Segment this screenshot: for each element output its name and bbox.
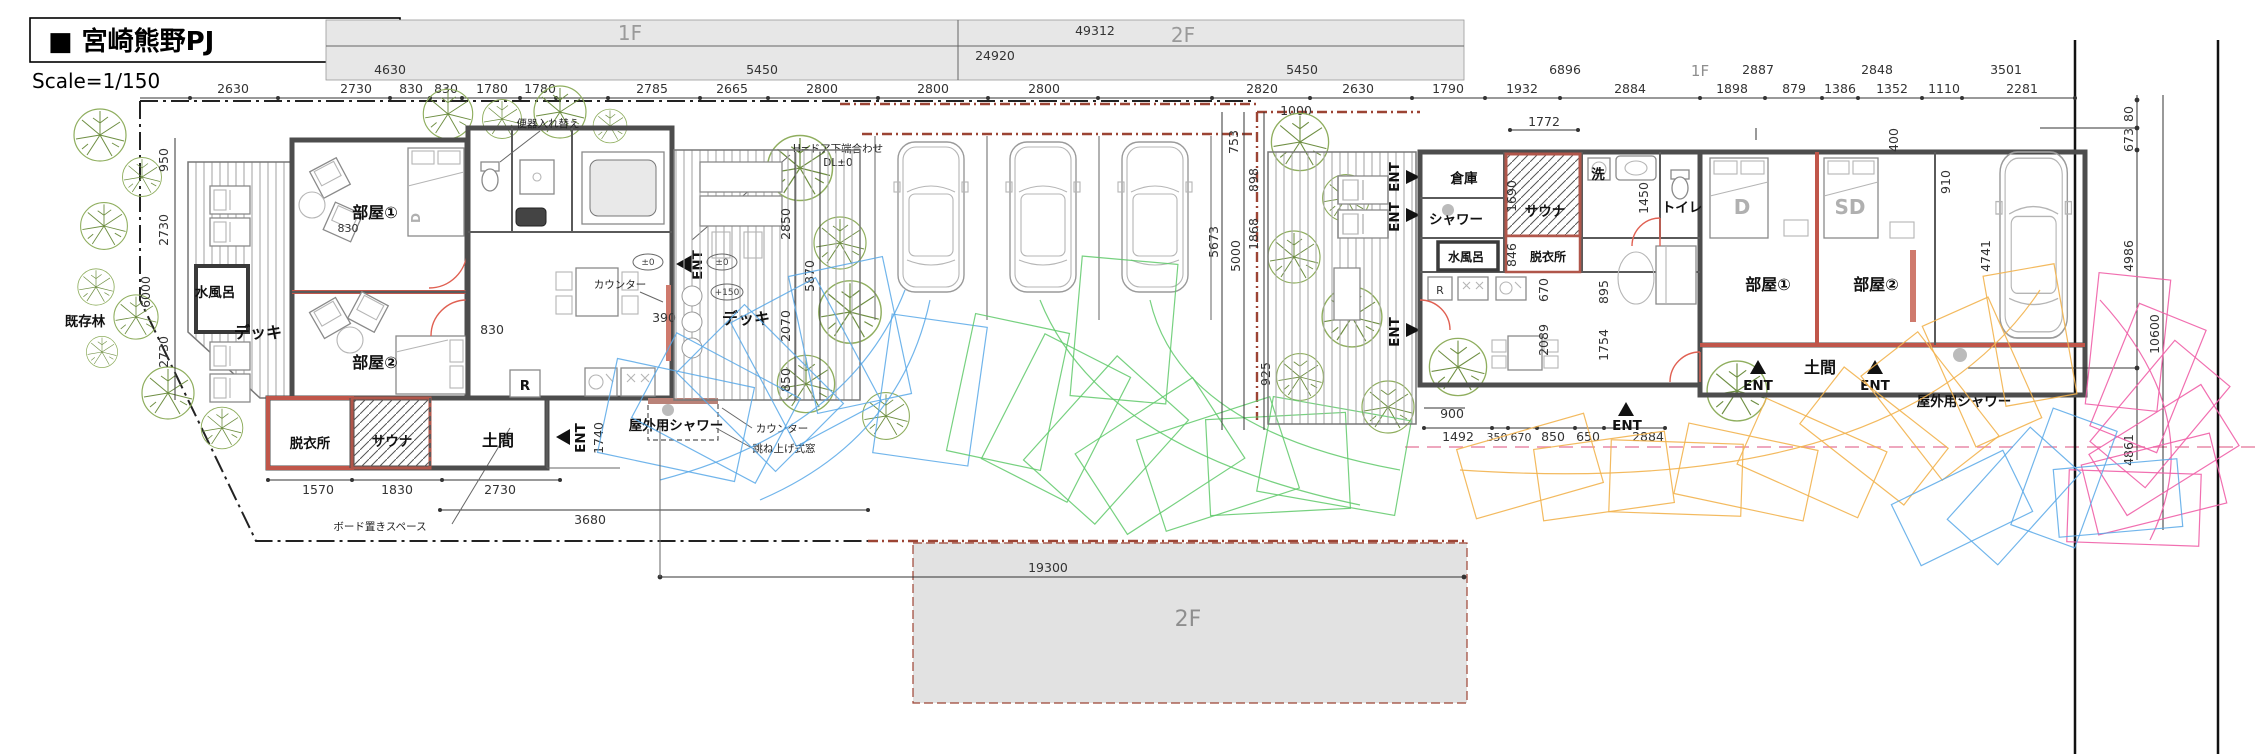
dim-bottom: 1492 [1442, 429, 1474, 444]
dim-v: 2730 [156, 336, 171, 368]
tree-icon [78, 269, 114, 305]
floor-label-2f-bottom: 2F [1175, 607, 1202, 632]
dim-v: 4986 [2121, 240, 2136, 272]
side-table [299, 192, 325, 218]
shower-right-label: シャワー [1429, 212, 1483, 228]
ent-label: ENT [1612, 418, 1643, 434]
room1-right-label: 部屋① [1745, 275, 1791, 294]
dim-830-inner: 830 [338, 222, 359, 235]
parking-area [875, 136, 1211, 320]
dim-cell: 1898 [1716, 81, 1748, 96]
deck-lounger [210, 342, 250, 370]
site2-deck: ENT ENT ENT [1268, 152, 1420, 424]
ent-label: ENT [1387, 161, 1403, 192]
stepping-stone [682, 286, 702, 306]
dim-v: 895 [1596, 280, 1611, 304]
toilet-fixture [1671, 170, 1689, 199]
dim-bottom: 2730 [484, 482, 516, 497]
side-table [337, 327, 363, 353]
dim-cell: 2884 [1614, 81, 1646, 96]
dining-table [576, 268, 618, 316]
sauna-left [352, 398, 430, 468]
dim-v: 5870 [802, 260, 817, 292]
middle-deck: ±0 +150 デッキ 2850 5870 2070 850 カウンター 跳ね上… [674, 150, 860, 455]
dim-v: 1754 [1596, 329, 1611, 361]
ent-label: ENT [1387, 316, 1403, 347]
counter-note: カウンター [594, 279, 647, 291]
dim-1772: 1772 [1528, 114, 1560, 129]
nightstand [1784, 220, 1808, 236]
dim-390: 390 [652, 310, 676, 325]
outdoor-shower-right-label: 屋外用シャワー [1917, 393, 2012, 410]
room1-left-label: 部屋① [352, 203, 398, 222]
deck-lounger [1338, 176, 1388, 204]
dim-v: 1868 [1246, 218, 1261, 250]
sofa [1656, 246, 1696, 304]
right-site: 80 673 4986 10600 4861 [1968, 95, 2163, 530]
dim-24920: 24920 [975, 48, 1015, 63]
ent-label: ENT [1387, 201, 1403, 232]
mid-site-dimensions: 753 898 1868 5673 5000 925 [1206, 112, 1273, 430]
dim-bottom: 3680 [574, 512, 606, 527]
fridge-label: R [520, 378, 531, 394]
dim-v: 846 [1504, 243, 1519, 267]
dim-cell: 2800 [806, 81, 838, 96]
level-mark: ±0 [641, 258, 655, 268]
dim-cell: 2800 [917, 81, 949, 96]
site-plan-drawing: ■ 宮崎熊野PJ Scale=1/150 1F 2F 1F 49312 2492… [0, 0, 2258, 754]
dim-bottom: 1830 [381, 482, 413, 497]
project-title: ■ 宮崎熊野PJ [48, 26, 214, 57]
dim-cell: 2665 [716, 81, 748, 96]
cold-bath-left-label: 水風呂 [195, 284, 236, 301]
ent-label: ENT [573, 422, 589, 453]
deck-lounger [210, 374, 250, 402]
dim-span: 5450 [746, 62, 778, 77]
dim-span: 6896 [1549, 62, 1581, 77]
right-building: R D SD 倉庫 シャワー 水風呂 サウナ 脱衣所 洗 トイレ [1420, 114, 2085, 444]
dim-cell: 2820 [1246, 81, 1278, 96]
dim-bottom: 1570 [302, 482, 334, 497]
fridge-label: R [1436, 284, 1444, 297]
dim-v: 80 [2121, 106, 2136, 122]
dim-v: 2850 [778, 208, 793, 240]
dim-v: 898 [1246, 168, 1261, 192]
rug [1618, 252, 1654, 304]
armchair [348, 292, 389, 333]
tree-icon [81, 203, 128, 250]
dim-cell: 2630 [1342, 81, 1374, 96]
dim-49312: 49312 [1075, 23, 1115, 38]
dim-span: 5450 [1286, 62, 1318, 77]
dim-cell: 1352 [1876, 81, 1908, 96]
bed-sd-label: SD [1834, 195, 1865, 219]
level-mark: ±0 [715, 258, 729, 268]
sauna-right-label: サウナ [1525, 204, 1566, 220]
wash-basin [1616, 156, 1656, 180]
stepping-stone [682, 312, 702, 332]
existing-forest-label: 既存林 [65, 313, 106, 330]
doma-right-label: 土間 [1804, 358, 1836, 377]
tree-icon [863, 393, 910, 440]
ent-arrow-icon [1618, 402, 1634, 416]
tree-icon [201, 407, 243, 449]
dim-v: 673 [2121, 128, 2136, 152]
bathtub-inner [590, 160, 656, 216]
sauna-left-label: サウナ [372, 434, 413, 450]
cold-bath-right-label: 水風呂 [1448, 249, 1484, 264]
sink [516, 208, 546, 226]
shower-head-icon [662, 404, 674, 416]
dim-v: 5000 [1228, 240, 1243, 272]
dim-1000: 1000 [1280, 103, 1312, 118]
car-top-view [1118, 142, 1192, 292]
floor-label-2f-top: 2F [1171, 23, 1195, 47]
tree-icon [423, 89, 472, 138]
level-mark: +150 [715, 288, 740, 298]
stove [1458, 277, 1488, 300]
flip-window-note: 跳ね上げ式窓 [753, 442, 816, 455]
dim-v: 5673 [1206, 226, 1221, 258]
dim-cell: 2730 [340, 81, 372, 96]
dim-cell: 1110 [1928, 81, 1960, 96]
deck-bench [1334, 268, 1360, 320]
dim-v: 2089 [1536, 324, 1551, 356]
dim-span: 4630 [374, 62, 406, 77]
outdoor-table [700, 162, 782, 192]
dim-v: 2070 [778, 310, 793, 342]
armchair [310, 298, 351, 339]
bed-size-label: D [409, 213, 423, 223]
car-top-view [894, 142, 968, 292]
deck-lounger [210, 186, 250, 214]
room2-left-label: 部屋② [352, 353, 398, 372]
dim-cell: 1790 [1432, 81, 1464, 96]
dim-830-gap: 830 [480, 322, 504, 337]
dim-v: 400 [1886, 128, 1901, 152]
toilet-note: 便器入れ替え [517, 117, 580, 130]
board-space-note: ボード置きスペース [333, 521, 426, 533]
ent-arrow-icon [1867, 360, 1883, 374]
dim-cell: 2281 [2006, 81, 2038, 96]
outdoor-table [700, 196, 782, 226]
dim-cell: 1932 [1506, 81, 1538, 96]
dim-bottom: 900 [1440, 406, 1464, 421]
dim-cell: 1780 [524, 81, 556, 96]
shower-head-icon [1953, 348, 1967, 362]
floor-plan-page: ■ 宮崎熊野PJ Scale=1/150 1F 2F 1F 49312 2492… [0, 0, 2258, 754]
dim-v: 910 [1938, 170, 1953, 194]
shower-stall [520, 160, 554, 194]
dim-cell: 830 [434, 81, 458, 96]
dim-v: 4741 [1978, 240, 1993, 272]
dim-v: 950 [156, 148, 171, 172]
red-wall-strip [1910, 250, 1916, 322]
dim-v: 1690 [1504, 180, 1519, 212]
bottom-2f-block: 19300 2F [658, 420, 1467, 703]
dim-19300: 19300 [1028, 560, 1068, 575]
floor-label-1f-left: 1F [618, 21, 642, 45]
floor-label-1f-right: 1F [1691, 62, 1709, 80]
dim-span: 2848 [1861, 62, 1893, 77]
deck-lounger [210, 218, 250, 246]
dim-bottom: 850 [1541, 429, 1565, 444]
storage-label: 倉庫 [1450, 170, 1479, 187]
dim-span: 3501 [1990, 62, 2022, 77]
dim-cell: 2630 [217, 81, 249, 96]
dim-v: 6000 [138, 276, 153, 308]
deck-mid-label: デッキ [722, 309, 770, 328]
dim-v: 753 [1226, 130, 1241, 154]
tree-icon [86, 336, 117, 367]
ent-arrow-icon [1750, 360, 1766, 374]
car-top-view [1006, 142, 1080, 292]
left-building: D 部屋① 830 部屋② 脱衣所 サウナ 土間 ENT 1740 水風呂 デッ… [188, 140, 620, 468]
ent-arrow-icon [556, 429, 570, 445]
doma-left-label: 土間 [482, 431, 514, 450]
dim-cell: 2785 [636, 81, 668, 96]
scale-label: Scale=1/150 [32, 69, 160, 93]
dim-v: 1450 [1636, 182, 1651, 214]
tree-icon [142, 367, 194, 419]
dress-room-left-label: 脱衣所 [290, 435, 331, 452]
tree-icon [74, 109, 126, 161]
dim-cell: 879 [1782, 81, 1806, 96]
bed-double [396, 336, 466, 394]
dim-cell: 830 [399, 81, 423, 96]
outdoor-shower-left-label: 屋外用シャワー [629, 417, 724, 434]
toilet-right-label: トイレ [1662, 200, 1703, 216]
laundry-label: 洗 [1591, 166, 1605, 183]
room2-right-label: 部屋② [1853, 275, 1899, 294]
deck-left-label: デッキ [234, 323, 282, 342]
dim-cell: 1386 [1824, 81, 1856, 96]
dress-right-label: 脱衣所 [1530, 249, 1566, 264]
ent-label: ENT [1743, 378, 1774, 394]
turning-path-pink [2067, 273, 2239, 547]
nightstand [1890, 222, 1914, 238]
bed-d-label: D [1734, 195, 1751, 219]
car-top-view [1996, 152, 2071, 338]
dim-cell: 2800 [1028, 81, 1060, 96]
dim-v: 670 [1536, 278, 1551, 302]
dim-v: 10600 [2147, 314, 2162, 354]
dim-v: 2730 [156, 214, 171, 246]
dim-cell: 1780 [476, 81, 508, 96]
deck-lounger [1338, 210, 1388, 238]
toilet-fixture [481, 162, 499, 191]
turning-path-blue-right [1891, 408, 2182, 566]
dim-span: 2887 [1742, 62, 1774, 77]
